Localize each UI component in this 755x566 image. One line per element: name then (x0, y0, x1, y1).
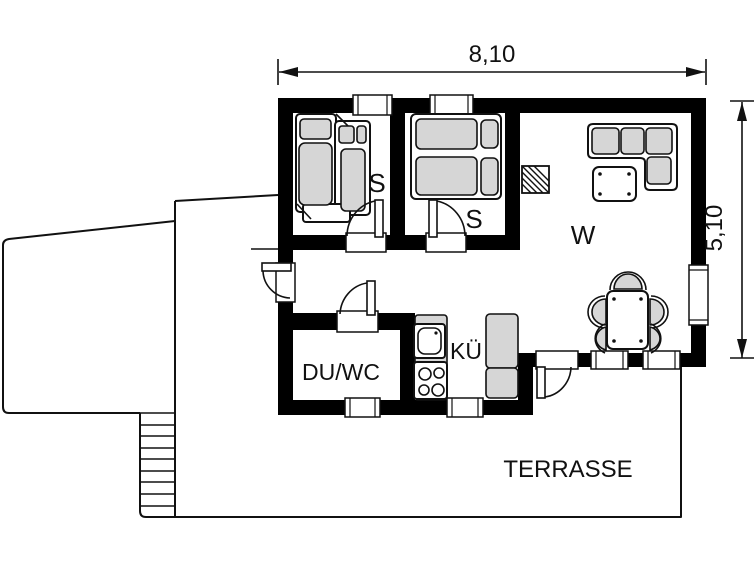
door-shower-wc (337, 281, 378, 332)
floor-plan-drawing: 8,10 5,10 S S W KÜ DU/WC TERRASSE (0, 0, 755, 566)
door-terrace-entrance (536, 351, 578, 398)
door-bedroom-right (426, 200, 466, 252)
stairs (140, 413, 175, 506)
room-label-living-room: W (571, 220, 596, 250)
dimension-width: 8,10 (278, 41, 706, 85)
coffee-table (593, 167, 636, 201)
room-label-bedroom-right: S (465, 204, 482, 234)
window (353, 95, 392, 115)
window (689, 265, 708, 325)
door-west-entrance (262, 263, 295, 302)
dining-chair (588, 296, 606, 328)
window (643, 351, 680, 369)
dimension-depth-label: 5,10 (701, 205, 728, 252)
dimension-depth: 5,10 (701, 101, 754, 358)
room-label-terrace: TERRASSE (503, 456, 632, 483)
sofa-bed (296, 114, 370, 222)
room-label-kitchen: KÜ (450, 338, 482, 364)
window (591, 351, 628, 369)
dimension-width-label: 8,10 (469, 41, 516, 68)
window (345, 398, 380, 417)
refrigerator (486, 314, 518, 398)
floor-plan: 8,10 5,10 S S W KÜ DU/WC TERRASSE (0, 0, 755, 566)
window (447, 398, 483, 417)
room-label-shower-wc: DU/WC (302, 359, 380, 385)
dining-chair (595, 324, 606, 353)
dining-table (607, 291, 648, 349)
room-label-bedroom-left: S (368, 168, 385, 198)
dining-chair (650, 324, 661, 353)
window (430, 95, 473, 115)
annex-outline (3, 221, 175, 413)
double-bed (411, 114, 501, 199)
dining-chair (610, 272, 646, 290)
cooktop (414, 362, 447, 399)
dining-chair (650, 296, 668, 328)
